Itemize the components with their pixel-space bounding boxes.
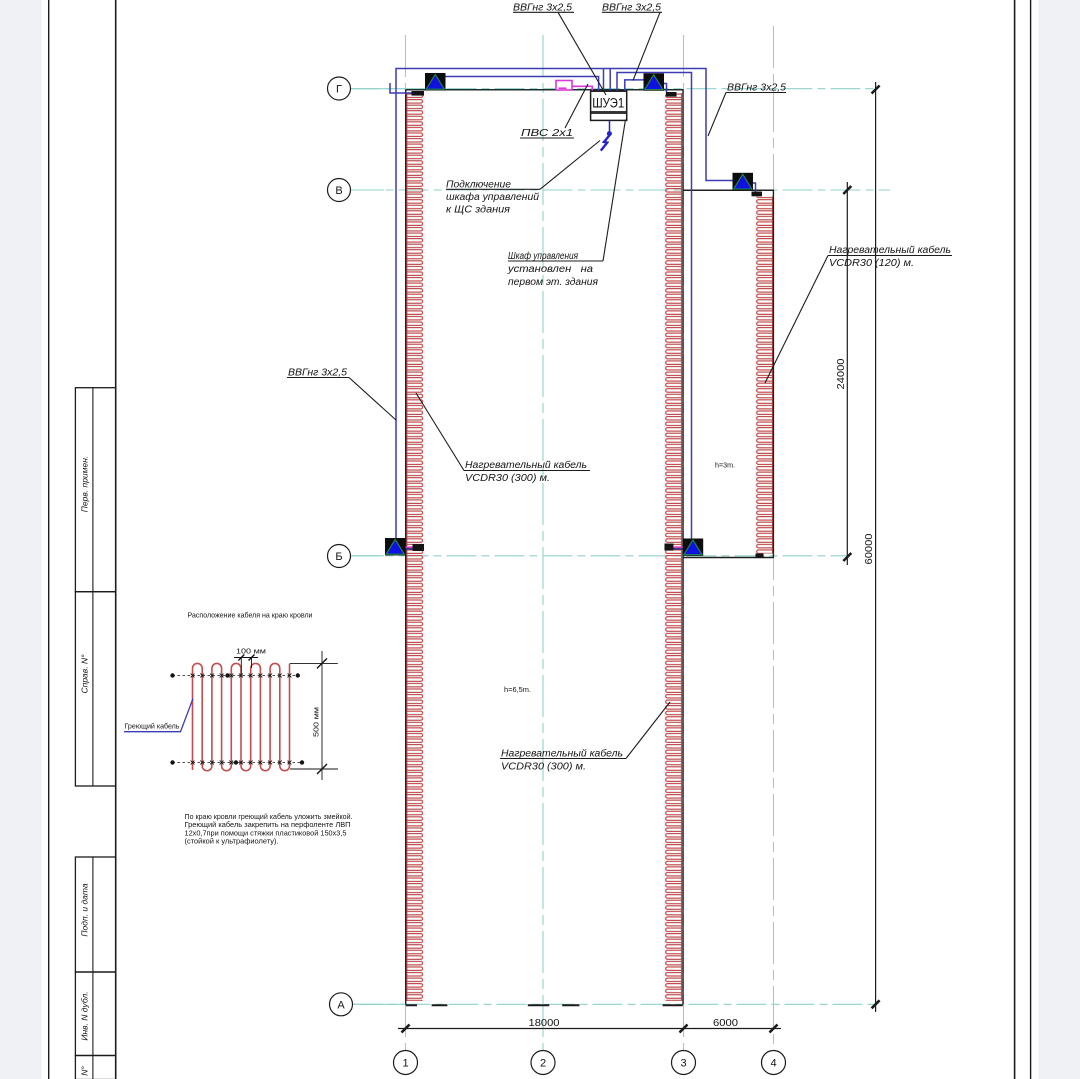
svg-text:Подп. и дата: Подп. и дата	[80, 883, 90, 936]
svg-text:VCDR30 (120) м.: VCDR30 (120) м.	[829, 258, 914, 269]
svg-text:Расположение кабеля на краю кр: Расположение кабеля на краю кровли	[188, 612, 313, 620]
svg-text:ПВС 2х1: ПВС 2х1	[521, 128, 573, 139]
svg-text:4: 4	[770, 1058, 776, 1070]
svg-text:VCDR30 (300) м.: VCDR30 (300) м.	[465, 473, 550, 484]
svg-text:Нагревательный кабель: Нагревательный кабель	[501, 748, 623, 760]
svg-text:60000: 60000	[863, 533, 875, 564]
svg-text:Греющий кабель: Греющий кабель	[125, 722, 180, 731]
svg-text:18000: 18000	[529, 1017, 560, 1029]
svg-text:ШУЭ1: ШУЭ1	[592, 95, 624, 110]
svg-text:Перв. примен.: Перв. примен.	[80, 456, 90, 513]
svg-text:h=3m.: h=3m.	[715, 461, 735, 470]
svg-text:Б: Б	[335, 551, 342, 563]
svg-text:24000: 24000	[835, 358, 847, 389]
svg-text:1: 1	[402, 1058, 408, 1070]
svg-text:Шкаф управления: Шкаф управления	[508, 250, 579, 262]
svg-text:N°: N°	[80, 1066, 90, 1076]
svg-text:первом эт. здания: первом эт. здания	[508, 277, 599, 288]
svg-text:установлен на: установлен на	[507, 264, 594, 275]
svg-text:Нагревательный кабель: Нагревательный кабель	[465, 459, 587, 471]
svg-text:3: 3	[680, 1058, 686, 1070]
svg-text:Справ. N°: Справ. N°	[80, 654, 90, 694]
svg-text:В: В	[335, 185, 342, 197]
svg-text:100 мм: 100 мм	[236, 647, 266, 656]
svg-text:А: А	[337, 999, 345, 1011]
svg-text:h=6,5m.: h=6,5m.	[504, 685, 531, 694]
svg-text:к ЩС здания: к ЩС здания	[446, 205, 511, 216]
svg-text:2: 2	[540, 1058, 546, 1070]
svg-text:500 мм: 500 мм	[312, 707, 321, 737]
svg-text:Г: Г	[336, 84, 342, 96]
svg-text:Инв. N дубл.: Инв. N дубл.	[80, 991, 90, 1040]
svg-text:VCDR30 (300) м.: VCDR30 (300) м.	[501, 762, 586, 773]
svg-text:6000: 6000	[713, 1017, 738, 1029]
svg-text:(стойкой к ультрафиолету).: (стойкой к ультрафиолету).	[185, 837, 279, 846]
svg-text:шкафа управлений: шкафа управлений	[446, 191, 539, 203]
